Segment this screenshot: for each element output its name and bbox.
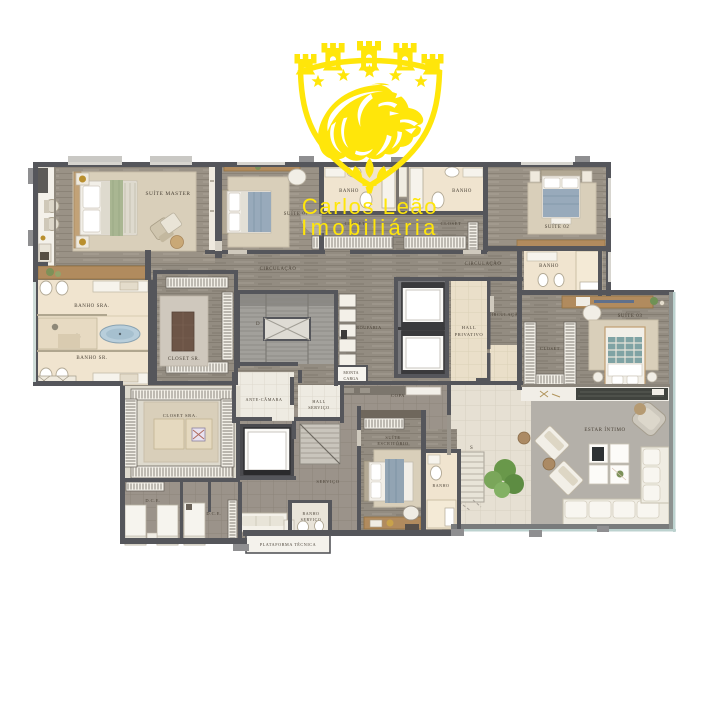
- svg-text:ESTAR ÍNTIMO: ESTAR ÍNTIMO: [584, 427, 625, 433]
- svg-text:SUÍTE: SUÍTE: [385, 435, 400, 440]
- svg-text:MONTA: MONTA: [343, 370, 358, 375]
- svg-text:BANHO SRA.: BANHO SRA.: [74, 304, 110, 309]
- svg-text:SUÍTE 03: SUÍTE 03: [618, 313, 643, 319]
- svg-text:CARGA: CARGA: [343, 376, 358, 381]
- svg-text:HALL: HALL: [462, 325, 476, 330]
- svg-text:SUÍTE MASTER: SUÍTE MASTER: [145, 189, 190, 197]
- svg-text:ANTE-CÂMARA: ANTE-CÂMARA: [246, 397, 283, 402]
- svg-text:CLOSET: CLOSET: [540, 346, 560, 351]
- svg-text:SERVIÇO: SERVIÇO: [316, 479, 339, 484]
- svg-text:BANHO SR.: BANHO SR.: [76, 356, 107, 361]
- svg-text:HALL: HALL: [312, 399, 325, 404]
- svg-text:ESCRITÓRIO: ESCRITÓRIO: [377, 441, 408, 446]
- svg-text:S: S: [470, 446, 473, 451]
- svg-text:CLOSET SR.: CLOSET SR.: [168, 357, 200, 362]
- svg-text:Imobiliária: Imobiliária: [301, 215, 439, 240]
- svg-text:BANHO: BANHO: [539, 264, 559, 269]
- svg-text:BANHO: BANHO: [452, 189, 472, 194]
- svg-text:CIRCULAÇÃO: CIRCULAÇÃO: [488, 312, 522, 317]
- svg-text:D.C.E.: D.C.E.: [145, 498, 160, 503]
- svg-text:BANHO: BANHO: [303, 511, 320, 516]
- svg-text:COPA: COPA: [391, 393, 405, 398]
- svg-text:PRIVATIVO: PRIVATIVO: [455, 332, 484, 337]
- svg-text:SUÍTE 02: SUÍTE 02: [545, 224, 570, 230]
- svg-text:CIRCULAÇÃO: CIRCULAÇÃO: [260, 266, 297, 272]
- svg-text:D: D: [256, 322, 260, 327]
- svg-text:CLOSET SRA.: CLOSET SRA.: [163, 413, 198, 418]
- svg-text:CIRCULAÇÃO: CIRCULAÇÃO: [465, 261, 502, 267]
- svg-text:PLATAFORMA TÉCNICA: PLATAFORMA TÉCNICA: [260, 542, 316, 547]
- svg-text:ROUPARIA: ROUPARIA: [356, 325, 381, 330]
- svg-text:BANHO: BANHO: [433, 483, 450, 488]
- svg-text:CLOSET: CLOSET: [441, 221, 462, 226]
- svg-text:SERVIÇO: SERVIÇO: [308, 405, 329, 410]
